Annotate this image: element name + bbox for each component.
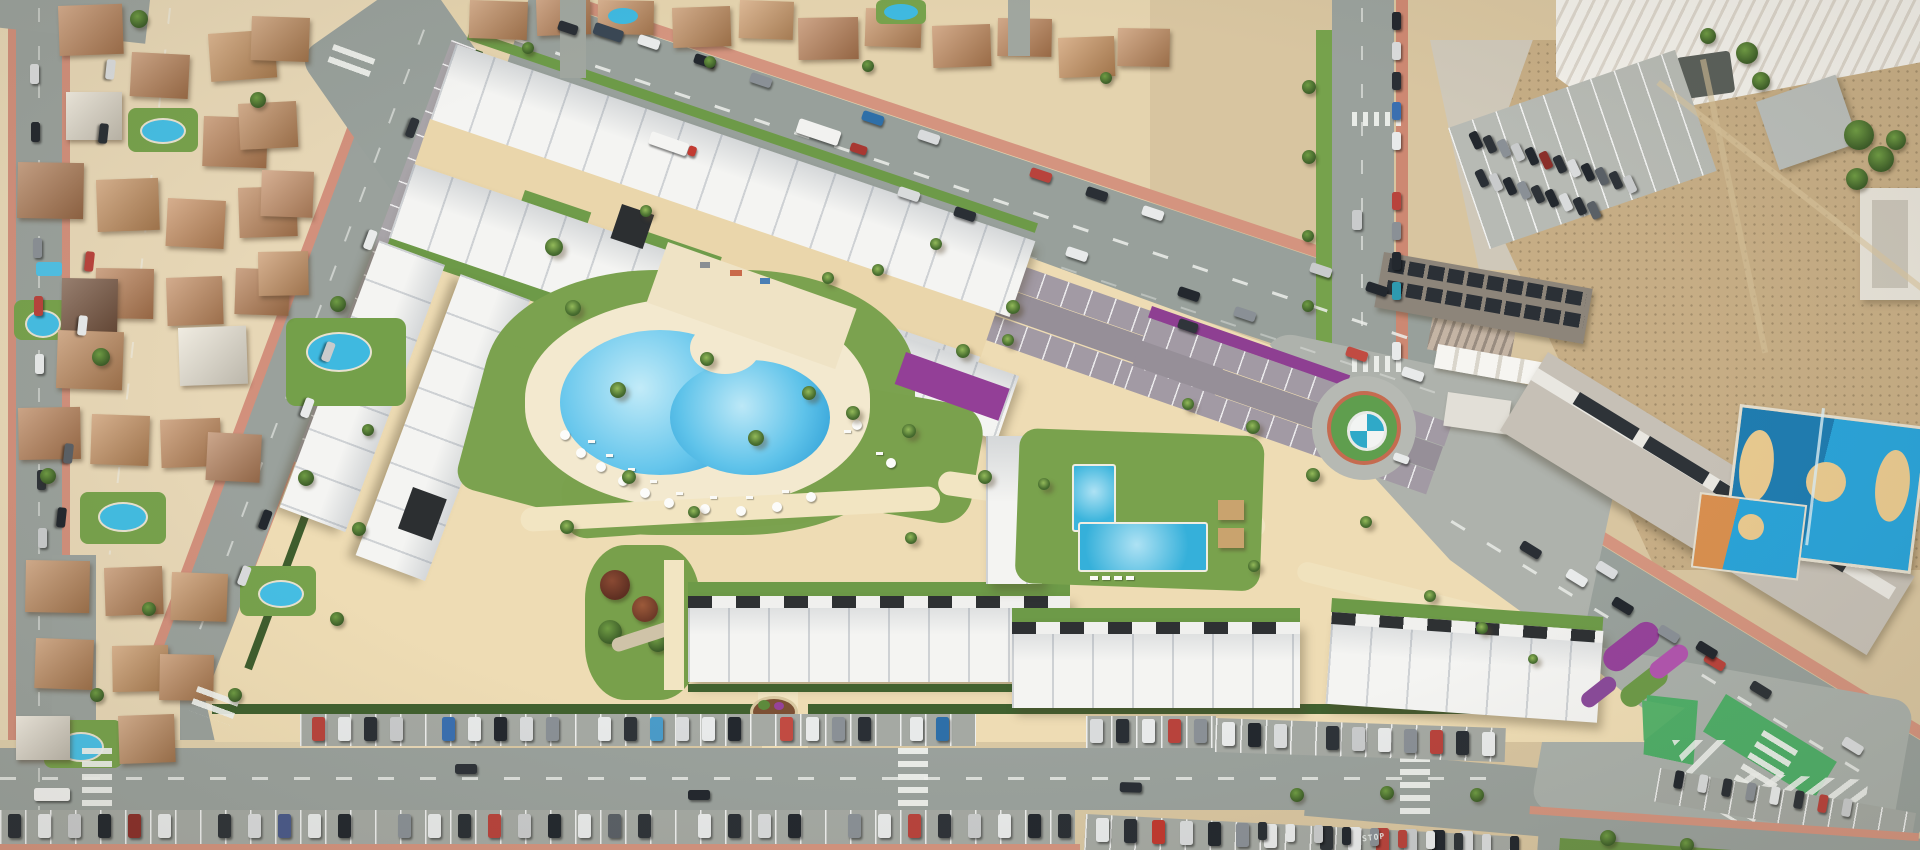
lounger	[650, 480, 657, 483]
parked-car	[968, 814, 981, 838]
parked-car	[698, 814, 711, 838]
crosswalk	[898, 748, 928, 810]
side-street	[1008, 0, 1030, 56]
palm-tree	[956, 344, 970, 358]
tree	[250, 92, 266, 108]
palm-tree	[822, 272, 834, 284]
palm-tree	[700, 352, 714, 366]
parked-car	[1168, 719, 1181, 743]
court-center-circle	[1738, 514, 1764, 540]
villa	[118, 714, 176, 764]
parked-car	[780, 717, 793, 741]
parked-car	[1314, 825, 1323, 843]
tree	[1886, 130, 1906, 150]
tree	[1302, 150, 1316, 164]
parked-car	[638, 814, 651, 838]
villa	[250, 16, 310, 62]
villa	[56, 330, 124, 390]
parked-car	[338, 814, 351, 838]
tree	[1302, 80, 1316, 94]
villa	[739, 0, 794, 40]
villa	[16, 716, 70, 760]
parked-car	[35, 354, 44, 374]
villa-pool	[608, 8, 638, 24]
parked-car	[312, 717, 325, 741]
parked-car	[1392, 42, 1401, 60]
walkway	[664, 560, 684, 690]
parked-car	[1116, 719, 1129, 743]
parked-car	[1482, 732, 1495, 756]
parked-car	[548, 814, 561, 838]
parked-car	[1392, 282, 1401, 300]
lounger	[1126, 576, 1134, 580]
parked-car	[1326, 726, 1339, 750]
parked-car	[1454, 833, 1463, 850]
parked-car	[1124, 819, 1137, 843]
parked-car	[1392, 102, 1401, 120]
parked-car	[98, 814, 111, 838]
pool-tarp	[36, 262, 62, 276]
car-driving	[1352, 210, 1362, 230]
park-tree-red	[600, 570, 630, 600]
tree	[1380, 786, 1394, 800]
tree	[142, 602, 156, 616]
parked-car	[1392, 342, 1401, 360]
plot-hedge-south	[212, 704, 1512, 714]
lounger	[676, 492, 683, 495]
parked-car	[68, 814, 81, 838]
lagoon-pool-lobe	[670, 360, 830, 475]
lane-line	[1361, 8, 1363, 338]
parked-car	[1510, 836, 1519, 850]
palm-tree	[1248, 560, 1260, 572]
parked-car	[34, 296, 43, 316]
tree	[40, 468, 56, 484]
palm-tree	[1528, 654, 1538, 664]
tree	[522, 42, 534, 54]
villa	[66, 92, 122, 140]
palm-tree	[565, 300, 581, 316]
tree	[1302, 300, 1314, 312]
villa	[166, 276, 224, 326]
tree	[1302, 230, 1314, 242]
parked-car	[1180, 821, 1193, 845]
parked-car	[936, 717, 949, 741]
palm-tree	[1306, 468, 1320, 482]
parasol	[664, 498, 674, 508]
villa	[25, 560, 90, 613]
parked-car	[728, 814, 741, 838]
parked-car	[624, 717, 637, 741]
solar-panel-strip	[688, 596, 1070, 608]
pergola	[1218, 500, 1244, 520]
parked-car	[428, 814, 441, 838]
parked-car	[390, 717, 403, 741]
parked-car	[1236, 823, 1249, 847]
parked-car	[398, 814, 411, 838]
parked-car	[33, 238, 42, 258]
tree	[1752, 72, 1770, 90]
parked-car	[218, 814, 231, 838]
parked-car	[938, 814, 951, 838]
villa-pool	[258, 580, 304, 608]
parked-car	[308, 814, 321, 838]
parked-car	[338, 717, 351, 741]
parked-car	[908, 814, 921, 838]
parked-car	[1392, 132, 1401, 150]
car-driving	[455, 764, 477, 774]
villa	[260, 170, 314, 218]
parasol	[736, 506, 746, 516]
parked-car	[1090, 719, 1103, 743]
parked-car	[1398, 830, 1407, 848]
tree	[1844, 120, 1874, 150]
tree	[1736, 42, 1758, 64]
parked-car	[1392, 222, 1401, 240]
parked-car	[910, 717, 923, 741]
tree	[130, 10, 148, 28]
parked-car	[278, 814, 291, 838]
lane-line	[0, 777, 1500, 780]
villa	[798, 17, 859, 60]
sidewalk	[0, 844, 1080, 850]
community-pool	[306, 332, 372, 372]
parked-car	[1404, 729, 1417, 753]
tree	[228, 688, 242, 702]
tree	[298, 470, 314, 486]
roundabout-center-ball	[1347, 411, 1387, 451]
palm-tree	[1360, 516, 1372, 528]
parked-car	[128, 814, 141, 838]
lounger	[876, 452, 883, 455]
villa	[170, 572, 228, 622]
parked-car	[1378, 728, 1391, 752]
palm-tree	[1038, 478, 1050, 490]
parked-car	[1286, 824, 1295, 842]
tree	[1868, 146, 1894, 172]
parked-car	[38, 814, 51, 838]
parasol	[560, 430, 570, 440]
parked-car	[442, 717, 455, 741]
parked-car	[1392, 252, 1401, 270]
palm-tree	[560, 520, 574, 534]
planter-flower	[774, 702, 784, 710]
palm-tree	[640, 205, 652, 217]
villa-pool	[140, 118, 186, 144]
palm-tree	[545, 238, 563, 256]
parked-car	[832, 717, 845, 741]
tree	[1700, 28, 1716, 44]
side-street	[560, 0, 586, 78]
lounger	[746, 496, 753, 499]
car-driving	[1120, 782, 1142, 793]
palm-tree	[748, 430, 764, 446]
parked-car	[1352, 727, 1365, 751]
parked-car	[1430, 730, 1443, 754]
tree	[330, 296, 346, 312]
sidewalk	[8, 0, 16, 850]
villa-pool	[25, 310, 61, 338]
parked-car	[1028, 814, 1041, 838]
parked-car	[518, 814, 531, 838]
parked-car	[1274, 724, 1287, 748]
play-equipment	[700, 262, 710, 268]
parked-car	[1222, 722, 1235, 746]
parasol	[772, 502, 782, 512]
parked-car	[1152, 820, 1165, 844]
pergola	[1218, 528, 1244, 548]
villa	[238, 101, 298, 150]
villa-pool	[884, 4, 918, 20]
parked-car	[248, 814, 261, 838]
tree	[330, 612, 344, 626]
parked-car	[158, 814, 171, 838]
palm-tree	[1182, 398, 1194, 410]
parasol	[806, 492, 816, 502]
parasol	[886, 458, 896, 468]
parked-car	[1096, 818, 1109, 842]
lounger	[606, 454, 613, 457]
parked-car	[788, 814, 801, 838]
parked-car	[608, 814, 621, 838]
townhouse-garden-strip	[1012, 608, 1300, 622]
parked-car	[1392, 72, 1401, 90]
truck-white	[34, 788, 70, 801]
parked-car	[1194, 719, 1207, 743]
palm-tree	[610, 382, 626, 398]
parked-car	[650, 717, 663, 741]
aerial-site-plan: STOP	[0, 0, 1920, 850]
parked-car	[468, 717, 481, 741]
parasol	[576, 448, 586, 458]
palm-tree	[1002, 334, 1014, 346]
tree	[862, 60, 874, 72]
parked-car	[806, 717, 819, 741]
parasol	[700, 504, 710, 514]
parked-car	[38, 528, 47, 548]
parked-car	[1208, 822, 1221, 846]
parked-car	[728, 717, 741, 741]
villa	[17, 162, 84, 219]
lounger	[844, 430, 851, 433]
villa	[932, 24, 991, 68]
parked-car	[758, 814, 771, 838]
north-vertical-street	[1332, 0, 1394, 368]
villa	[469, 0, 528, 40]
parked-car	[520, 717, 533, 741]
palm-tree	[688, 506, 700, 518]
palm-tree	[622, 470, 636, 484]
parasol	[852, 420, 862, 430]
tree	[1846, 168, 1868, 190]
parked-car	[1456, 731, 1469, 755]
parked-car	[676, 717, 689, 741]
palm-tree	[905, 532, 917, 544]
lounger	[1090, 576, 1098, 580]
lounger	[588, 440, 595, 443]
parked-car	[30, 64, 39, 84]
tree	[704, 56, 716, 68]
parked-car	[8, 814, 21, 838]
villa	[130, 52, 190, 99]
planter-shrub	[758, 700, 770, 710]
parked-car	[1258, 822, 1267, 840]
parked-car	[1426, 831, 1435, 849]
tree	[92, 348, 110, 366]
palm-tree	[930, 238, 942, 250]
villa	[672, 6, 731, 48]
palm-tree	[1476, 622, 1488, 634]
palm-tree	[872, 264, 884, 276]
parked-car	[1248, 723, 1261, 747]
parked-car	[702, 717, 715, 741]
townhouse-garden-strip	[688, 582, 1070, 596]
lounger	[1114, 576, 1122, 580]
crosswalk	[1400, 756, 1430, 820]
tree	[352, 522, 366, 536]
parked-car	[364, 717, 377, 741]
play-equipment	[730, 270, 742, 276]
parked-car	[458, 814, 471, 838]
parked-car	[598, 717, 611, 741]
townhouse-row	[1012, 622, 1300, 708]
palm-tree	[978, 470, 992, 484]
palm-tree	[802, 386, 816, 400]
tree	[1470, 788, 1484, 802]
parked-car	[858, 717, 871, 741]
parked-car	[1058, 814, 1071, 838]
crosswalk	[82, 748, 112, 810]
lounger	[782, 490, 789, 493]
tree	[362, 424, 374, 436]
parked-car	[1392, 192, 1401, 210]
parked-car	[488, 814, 501, 838]
lounger	[1102, 576, 1110, 580]
parked-car	[494, 717, 507, 741]
parked-car	[998, 814, 1011, 838]
parasol	[596, 462, 606, 472]
palm-tree	[902, 424, 916, 438]
palm-tree	[1424, 590, 1436, 602]
villa	[90, 414, 150, 466]
solar-panel-strip	[1012, 622, 1300, 634]
park-tree-red	[632, 596, 658, 622]
villa	[1117, 28, 1170, 67]
tree	[1290, 788, 1304, 802]
lap-pool	[1078, 522, 1208, 572]
car-driving	[688, 790, 710, 800]
parked-car	[578, 814, 591, 838]
tree	[90, 688, 104, 702]
parked-car	[848, 814, 861, 838]
parked-car	[1392, 12, 1401, 30]
villa	[58, 4, 124, 56]
parked-car	[1142, 719, 1155, 743]
tree	[1680, 838, 1694, 850]
parked-car	[31, 122, 40, 142]
tree	[1600, 830, 1616, 846]
play-equipment	[760, 278, 770, 284]
villa-pool	[98, 502, 148, 532]
villa	[96, 178, 160, 232]
tree	[1100, 72, 1112, 84]
palm-tree	[1006, 300, 1020, 314]
villa	[205, 432, 261, 483]
villa	[258, 251, 309, 296]
lounger	[710, 496, 717, 499]
parked-car	[1482, 834, 1491, 850]
villa	[178, 326, 248, 386]
palm-tree	[1246, 420, 1260, 434]
palm-tree	[846, 406, 860, 420]
parked-car	[546, 717, 559, 741]
parasol	[640, 488, 650, 498]
villa	[34, 638, 94, 690]
parked-car	[1342, 827, 1351, 845]
parked-car	[878, 814, 891, 838]
villa	[165, 198, 225, 249]
